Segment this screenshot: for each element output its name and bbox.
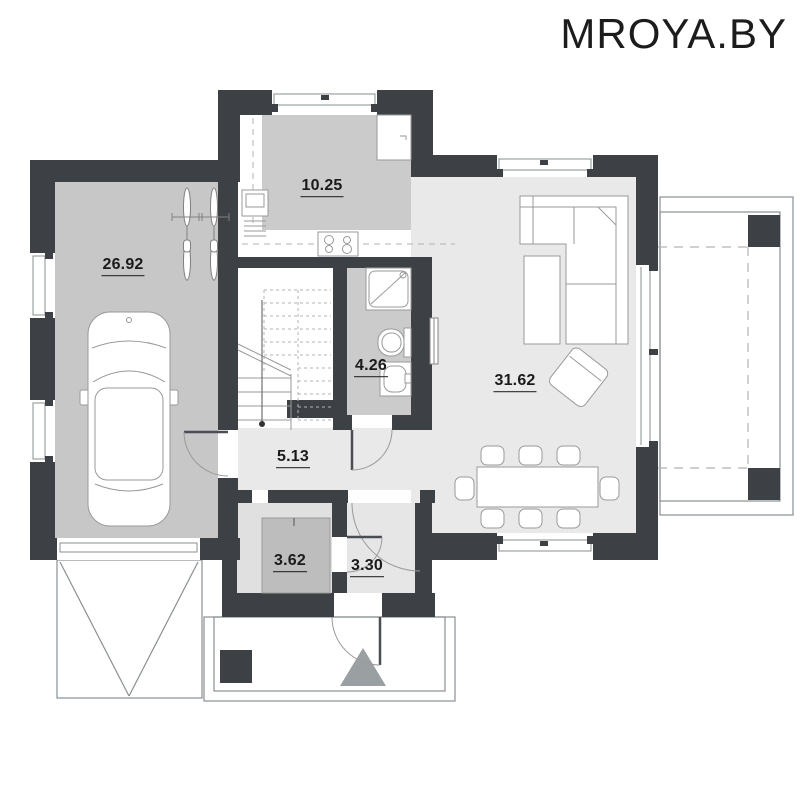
- dining-table-icon: [477, 467, 598, 507]
- room-area-label-kitchen: 10.25: [300, 177, 343, 197]
- wall-segment: [332, 572, 347, 593]
- wall-segment: [218, 182, 238, 430]
- chair-icon: [557, 446, 580, 465]
- chair-icon: [557, 509, 580, 528]
- terrace: [658, 197, 793, 515]
- wall-segment: [332, 503, 347, 537]
- garage-door-swing-line: [60, 562, 129, 696]
- wall-segment: [222, 593, 334, 617]
- living-room-window-bottom: [497, 533, 593, 560]
- room-area-label-bathroom: 4.26: [354, 357, 388, 377]
- terrace-column: [748, 468, 780, 500]
- room-area-label-entry-hall: 3.30: [350, 557, 384, 577]
- chair-icon: [600, 477, 619, 500]
- wall-segment: [30, 538, 57, 560]
- driveway-outline: [57, 560, 202, 698]
- entrance-porch: [204, 617, 455, 701]
- room-area-label-storage: 3.62: [273, 552, 307, 572]
- room-area-label-living-room: 31.62: [493, 372, 536, 392]
- wall-segment: [411, 268, 432, 430]
- stove-icon: [318, 232, 358, 256]
- wall-segment: [382, 593, 435, 617]
- garage-window: [30, 400, 55, 462]
- wall-segment: [347, 415, 352, 430]
- wall-segment: [268, 490, 348, 503]
- terrace-roof-overhang-dashed: [658, 247, 748, 468]
- site-watermark: MROYA.BY: [560, 10, 787, 58]
- garage-door-swing-line: [129, 562, 198, 696]
- room-area-label-garage: 26.92: [101, 256, 144, 276]
- chair-icon: [481, 446, 504, 465]
- wall-segment: [30, 318, 55, 400]
- chair-icon: [519, 446, 542, 465]
- floor-plan-page: 26.92 10.25 4.26 31.62 5.13 3.62 3.30 MR…: [0, 0, 800, 800]
- living-room-window-top: [497, 155, 593, 177]
- wall-segment: [411, 155, 497, 177]
- terrace-deck-outline: [660, 212, 780, 501]
- garage-door: [57, 538, 200, 560]
- garage-window: [30, 253, 55, 318]
- chair-icon: [481, 509, 504, 528]
- wall-segment: [636, 155, 658, 265]
- floor-plan-drawing: [0, 0, 800, 800]
- wall-segment: [222, 490, 252, 503]
- porch-column: [220, 650, 252, 683]
- shower-icon: [366, 268, 411, 310]
- entrance-door: [332, 617, 380, 665]
- chair-icon: [455, 477, 474, 500]
- wall-segment: [593, 533, 658, 560]
- fridge-icon: [377, 115, 411, 160]
- wall-segment: [30, 160, 55, 253]
- coffee-table-icon: [524, 256, 560, 344]
- room-area-label-hallway: 5.13: [276, 448, 310, 468]
- wall-segment: [238, 257, 432, 268]
- wall-segment: [287, 400, 333, 418]
- wall-segment: [333, 268, 347, 430]
- chair-icon: [519, 509, 542, 528]
- car-icon: [80, 312, 178, 526]
- wall-segment: [420, 490, 435, 503]
- hallway-floor: [238, 428, 435, 490]
- kitchen-window: [272, 90, 377, 115]
- wall-segment: [636, 447, 658, 535]
- wall-segment: [428, 533, 497, 560]
- terrace-glass-door: [636, 265, 658, 447]
- terrace-column: [748, 215, 780, 247]
- stair-walk-line-start: [259, 421, 265, 427]
- radiator-icon: [430, 318, 438, 364]
- driveway: [57, 560, 202, 698]
- entry-hall-floor: [347, 503, 420, 593]
- wall-segment: [30, 160, 240, 182]
- toilet-icon: [378, 328, 411, 357]
